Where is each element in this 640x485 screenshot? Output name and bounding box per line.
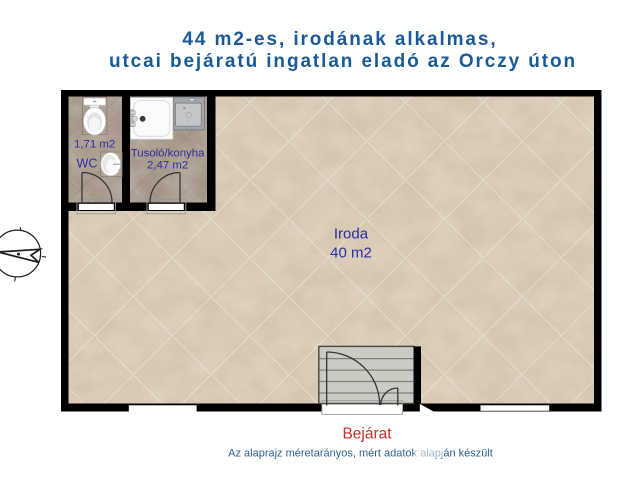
svg-text:Az alaprajz méretarányos, mért: Az alaprajz méretarányos, mért adatok al… (228, 448, 493, 460)
svg-text:40 m2: 40 m2 (330, 245, 372, 262)
svg-text:Tusoló/konyha: Tusoló/konyha (131, 148, 205, 160)
svg-text:Bejárat: Bejárat (342, 426, 392, 443)
svg-text:Iroda: Iroda (334, 226, 369, 243)
svg-text:WC: WC (77, 157, 98, 171)
svg-text:utcai bejáratú ingatlan eladó: utcai bejáratú ingatlan eladó az Orczy ú… (109, 51, 577, 72)
svg-text:1,71 m2: 1,71 m2 (74, 139, 115, 151)
svg-text:44 m2-es, irodának alkalmas,: 44 m2-es, irodának alkalmas, (182, 29, 497, 50)
svg-text:2,47 m2: 2,47 m2 (147, 160, 188, 172)
